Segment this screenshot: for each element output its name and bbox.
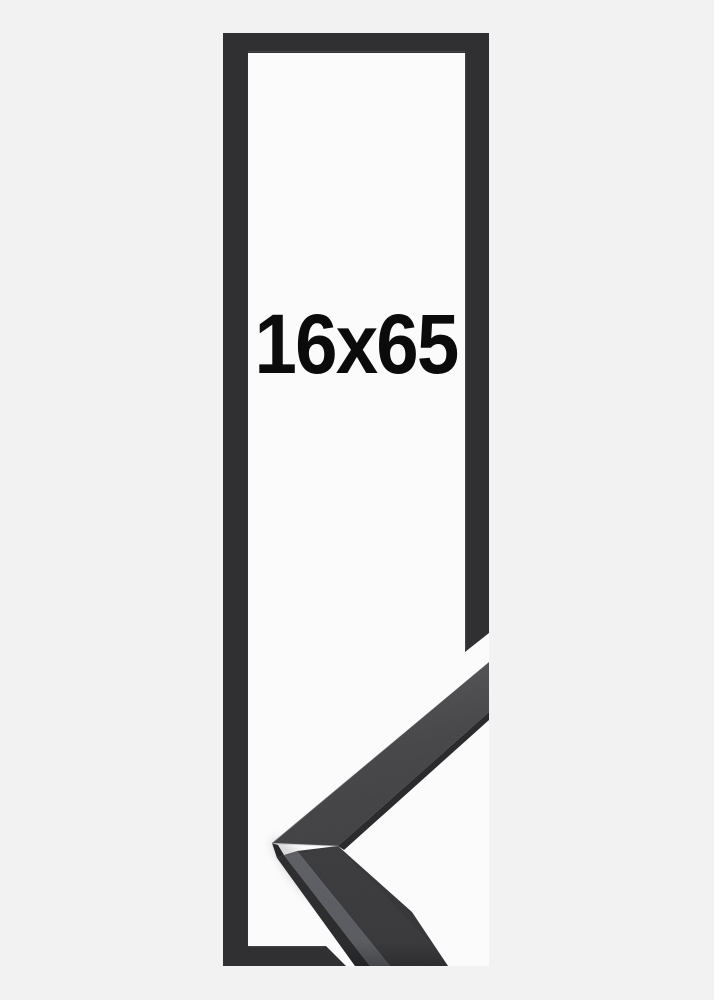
product-image: 16x65 (0, 0, 714, 1000)
frame-bottom-bar (223, 946, 346, 966)
frame-product-graphic: 16x65 (0, 0, 714, 1000)
size-label: 16x65 (255, 297, 458, 391)
frame-right-bar (465, 33, 489, 652)
frame-top-bar (223, 33, 489, 53)
frame-interior (247, 53, 489, 966)
frame-left-bar (223, 33, 248, 966)
